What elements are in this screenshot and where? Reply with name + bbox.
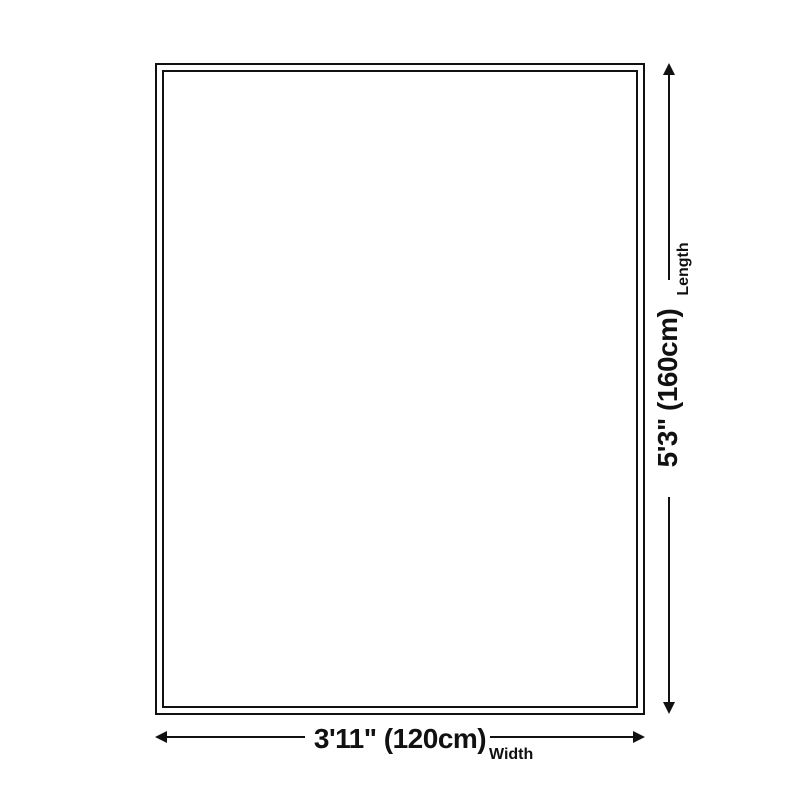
- width-arrow-right-icon: [633, 731, 645, 743]
- length-dimension-line-upper: [668, 73, 670, 280]
- width-dimension-line-left: [165, 736, 305, 738]
- width-dimension-line-right: [490, 736, 634, 738]
- rug-outline-inner: [162, 70, 638, 708]
- size-diagram: Length 5'3" (160cm) 3'11" (120cm) Width: [0, 0, 800, 800]
- width-axis-label: Width: [489, 747, 533, 763]
- length-axis-label: Length: [676, 242, 692, 295]
- rug-outline-outer: [155, 63, 645, 715]
- width-value: 3'11" (120cm): [314, 725, 486, 753]
- length-value: 5'3" (160cm): [654, 309, 682, 468]
- length-dimension-line-lower: [668, 497, 670, 703]
- length-arrow-down-icon: [663, 702, 675, 714]
